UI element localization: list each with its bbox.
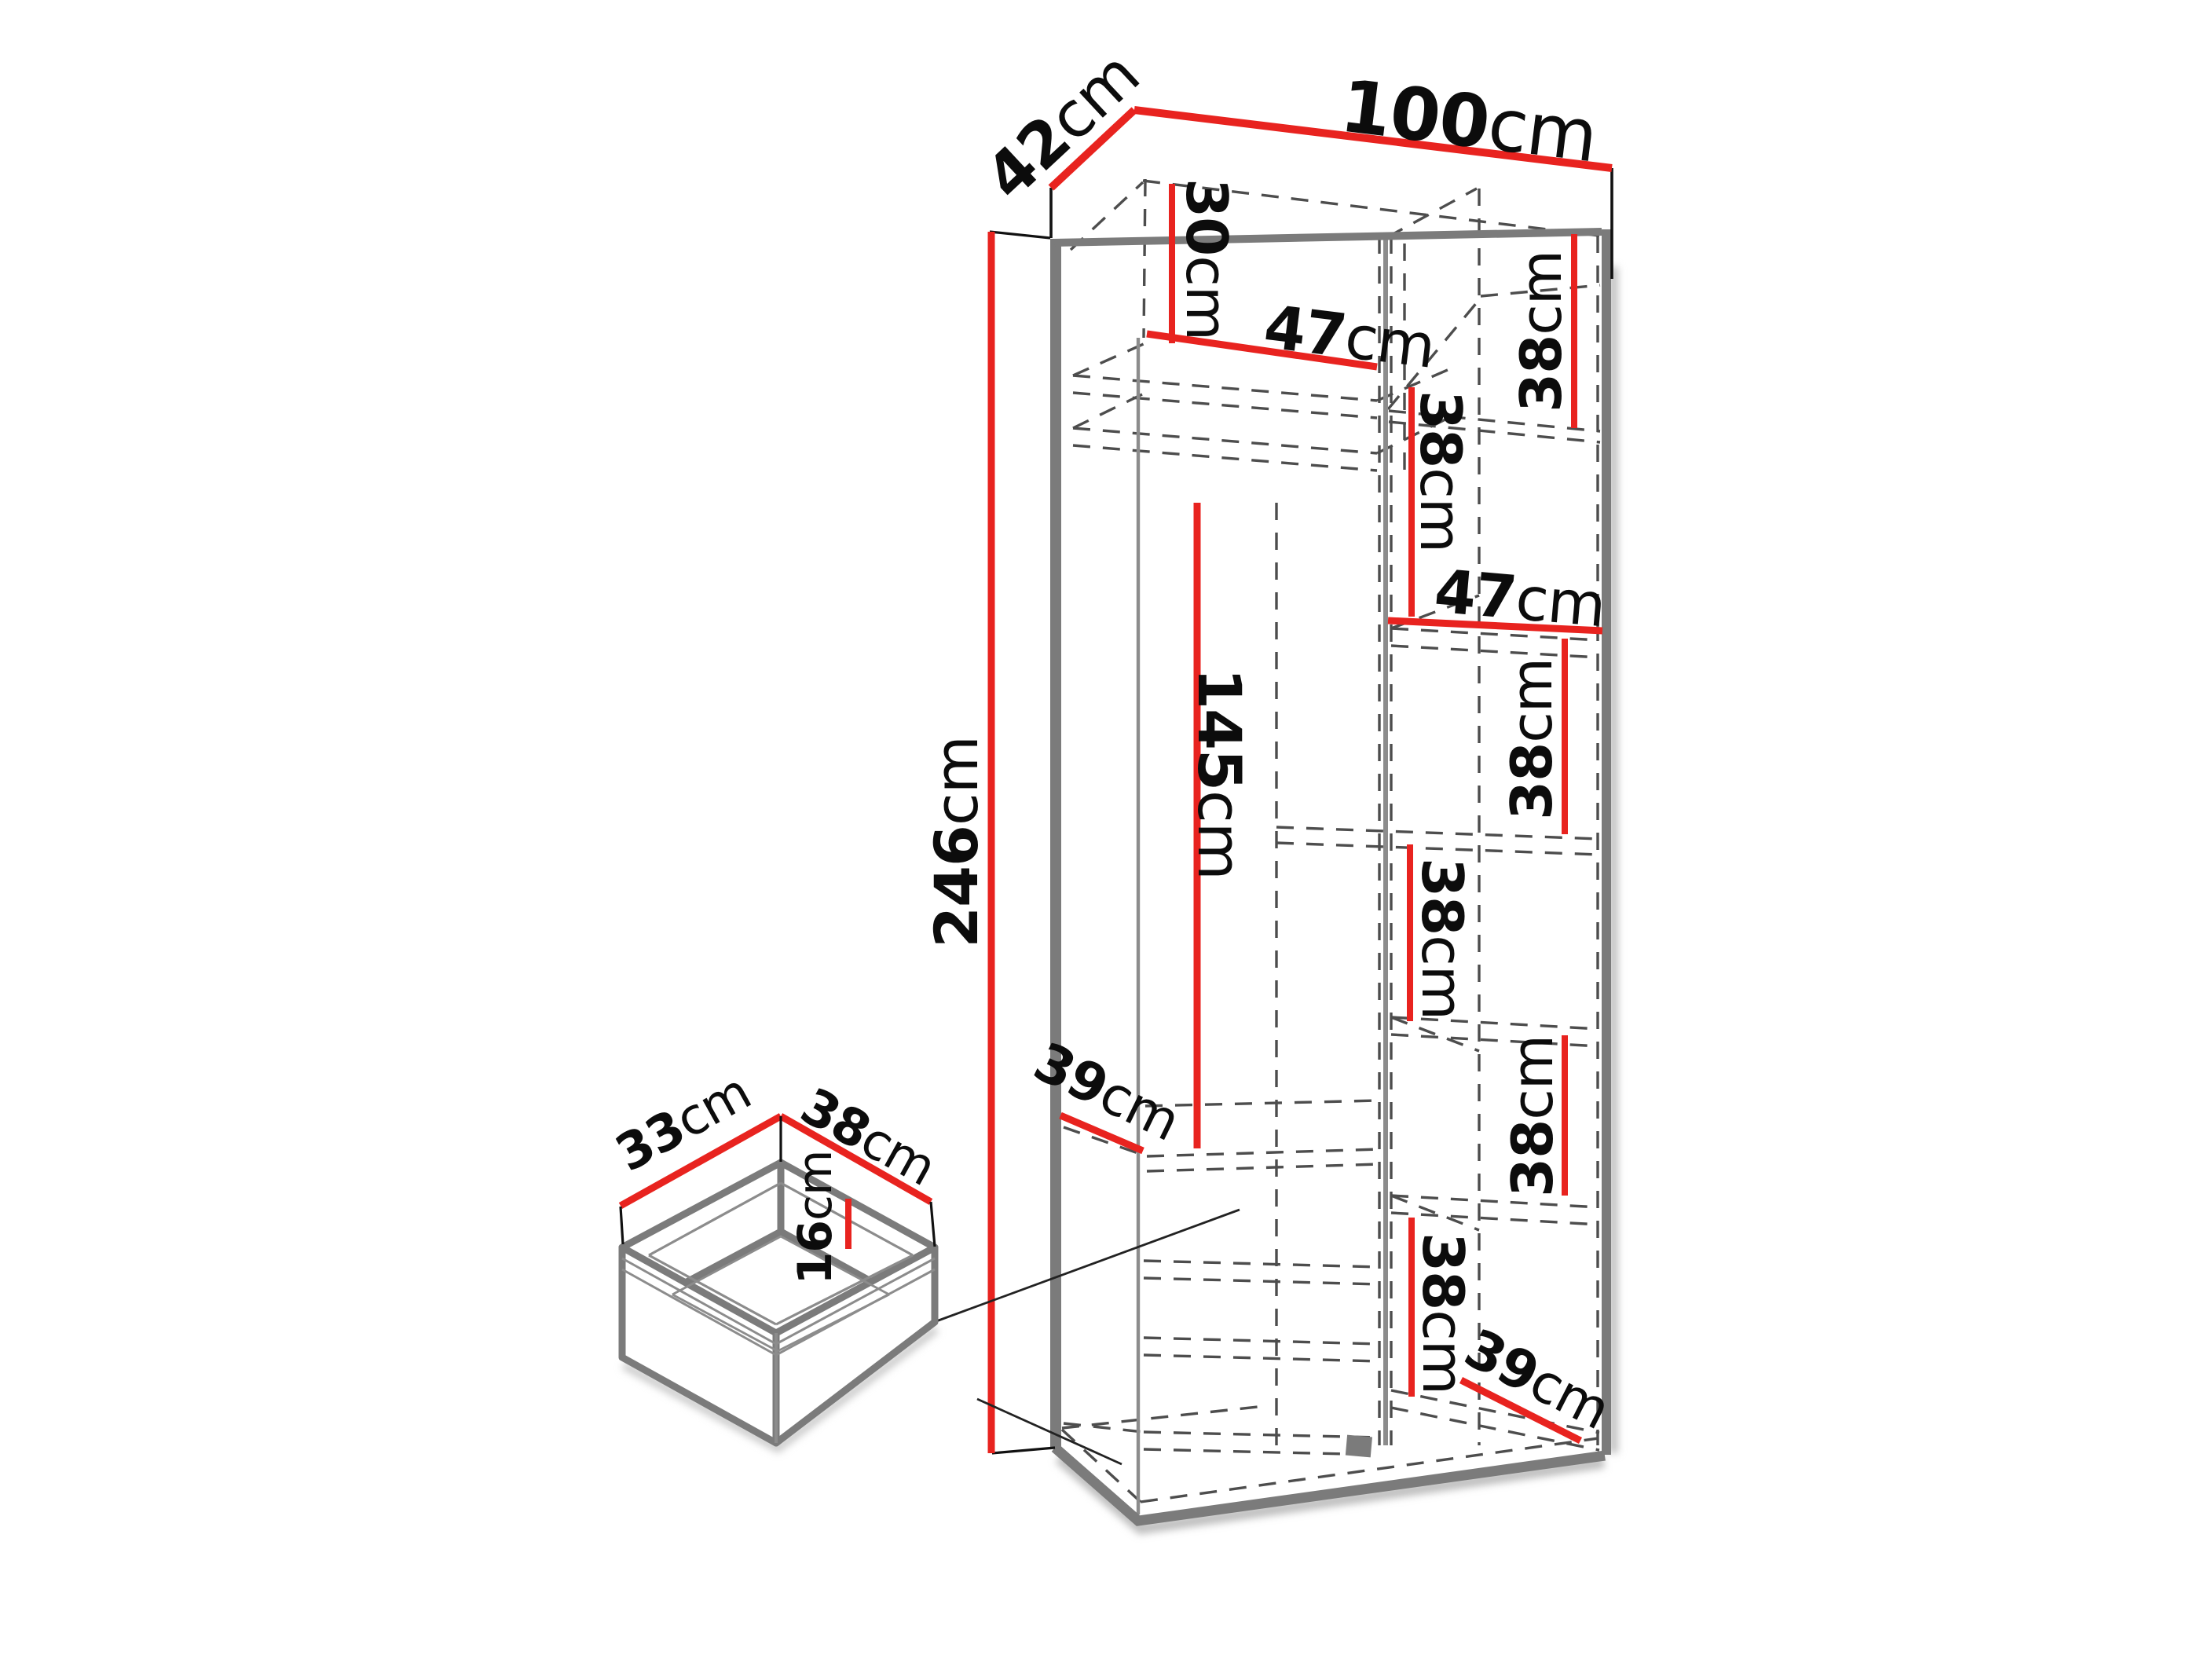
label-hanging-space: 145cm	[1185, 668, 1255, 879]
label-drawer-depth: 33cm	[606, 1063, 760, 1183]
drawer-box	[622, 1163, 935, 1443]
label-shelf38-2: 38cm	[1408, 390, 1474, 552]
label-shelf38-5: 38cm	[1500, 1035, 1566, 1197]
label-shelf38-3: 38cm	[1499, 658, 1565, 820]
left-side-panel	[990, 232, 1056, 1453]
label-shelf38-4: 38cm	[1409, 858, 1475, 1020]
divider-foot	[1346, 1435, 1372, 1458]
label-right-section-width: 47cm	[1432, 555, 1609, 640]
label-shelf38-1: 38cm	[1508, 251, 1574, 412]
label-overall-height: 246cm	[921, 736, 991, 947]
furniture-dimension-diagram: 100cm 42cm 246cm 30cm 47cm 145cm 39cm 47…	[0, 0, 2212, 1659]
wardrobe-diagram: 100cm 42cm 246cm 30cm 47cm 145cm 39cm 47…	[921, 38, 1620, 1529]
label-top-compartment: 30cm	[1174, 178, 1240, 340]
label-drawer-height: 16cm	[788, 1151, 843, 1285]
